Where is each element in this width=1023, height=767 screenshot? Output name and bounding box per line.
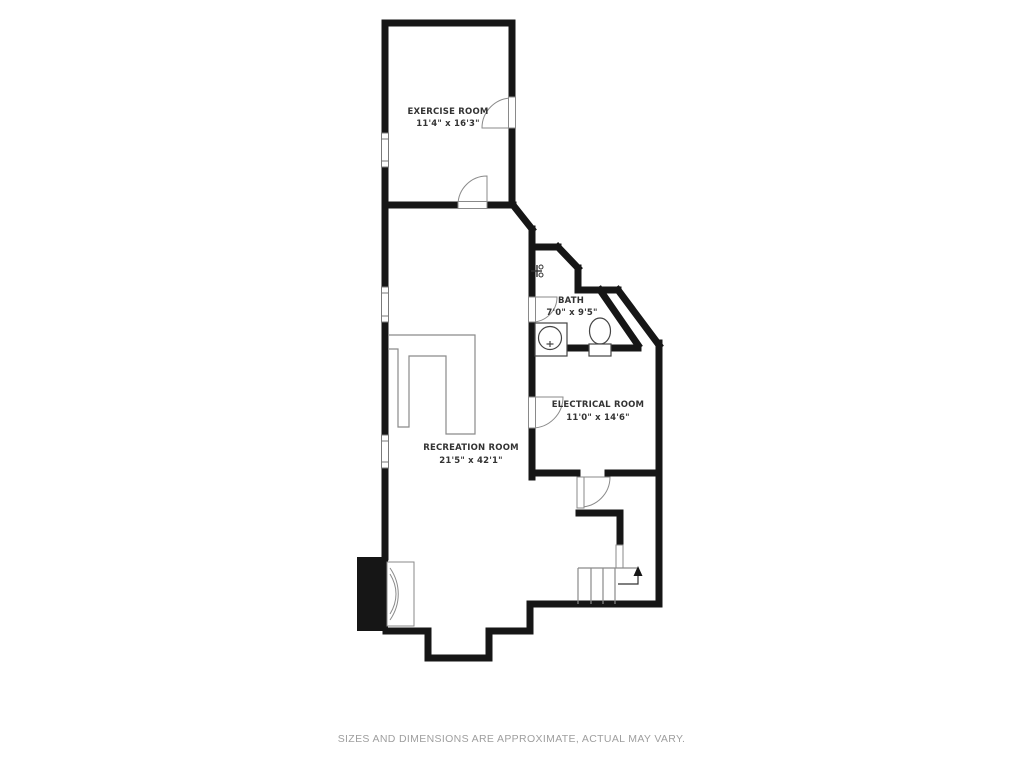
fireplace-fixture bbox=[357, 557, 414, 631]
floor-plan-canvas: EXERCISE ROOM 11'4" x 16'3" BATH 7'0" x … bbox=[0, 0, 1023, 767]
recreation-room-label: RECREATION ROOM 21'5" x 42'1" bbox=[423, 443, 519, 466]
door-swing bbox=[577, 477, 610, 508]
fireplace-hearth bbox=[387, 562, 414, 626]
room-name: BATH bbox=[558, 296, 584, 306]
stairs-up-arrow-icon bbox=[618, 566, 643, 584]
room-name: ELECTRICAL ROOM bbox=[552, 400, 644, 410]
room-dimensions: 11'4" x 16'3" bbox=[416, 119, 480, 129]
door-swing bbox=[458, 176, 487, 209]
window bbox=[382, 287, 389, 322]
room-name: RECREATION ROOM bbox=[423, 443, 519, 453]
floor-plan-page: EXERCISE ROOM 11'4" x 16'3" BATH 7'0" x … bbox=[0, 0, 1023, 767]
stair-treads bbox=[578, 568, 637, 604]
window bbox=[382, 133, 389, 167]
room-dimensions: 21'5" x 42'1" bbox=[439, 456, 503, 466]
electrical-room-label: ELECTRICAL ROOM 11'0" x 14'6" bbox=[552, 400, 644, 423]
staircase bbox=[578, 545, 643, 604]
room-dimensions: 11'0" x 14'6" bbox=[566, 413, 630, 423]
window bbox=[382, 435, 389, 468]
room-name: EXERCISE ROOM bbox=[407, 107, 488, 117]
disclaimer-text: SIZES AND DIMENSIONS ARE APPROXIMATE, AC… bbox=[0, 733, 1023, 745]
exercise-room-label: EXERCISE ROOM 11'4" x 16'3" bbox=[407, 107, 488, 129]
fireplace-mass bbox=[357, 557, 388, 631]
built-in-outline bbox=[388, 335, 475, 434]
room-dimensions: 7'0" x 9'5" bbox=[546, 308, 597, 318]
sink-fixture bbox=[535, 323, 567, 356]
toilet-fixture bbox=[589, 318, 611, 356]
stair-railing bbox=[616, 545, 623, 568]
